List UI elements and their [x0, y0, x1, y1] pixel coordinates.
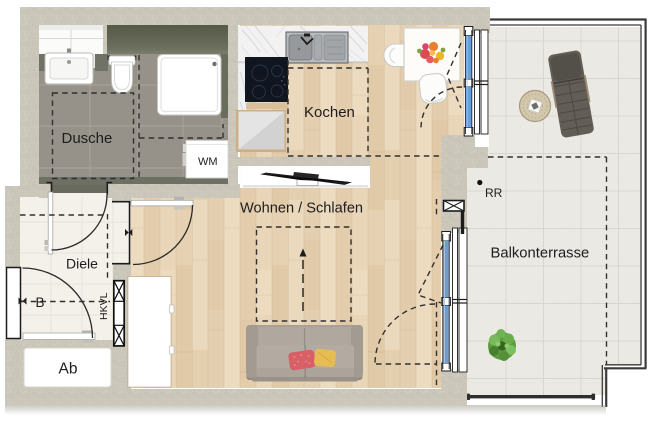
svg-text:Kochen: Kochen: [304, 104, 355, 121]
svg-text:B: B: [36, 295, 45, 310]
svg-text:Wohnen / Schlafen: Wohnen / Schlafen: [240, 201, 363, 217]
svg-text:HKVL: HKVL: [98, 292, 110, 320]
svg-text:Ab: Ab: [59, 361, 78, 378]
svg-text:Diele: Diele: [66, 256, 98, 272]
svg-text:Balkonterrasse: Balkonterrasse: [491, 246, 590, 262]
svg-text:WM: WM: [198, 156, 218, 168]
svg-text:Dusche: Dusche: [62, 130, 113, 147]
svg-text:RR: RR: [485, 186, 503, 200]
